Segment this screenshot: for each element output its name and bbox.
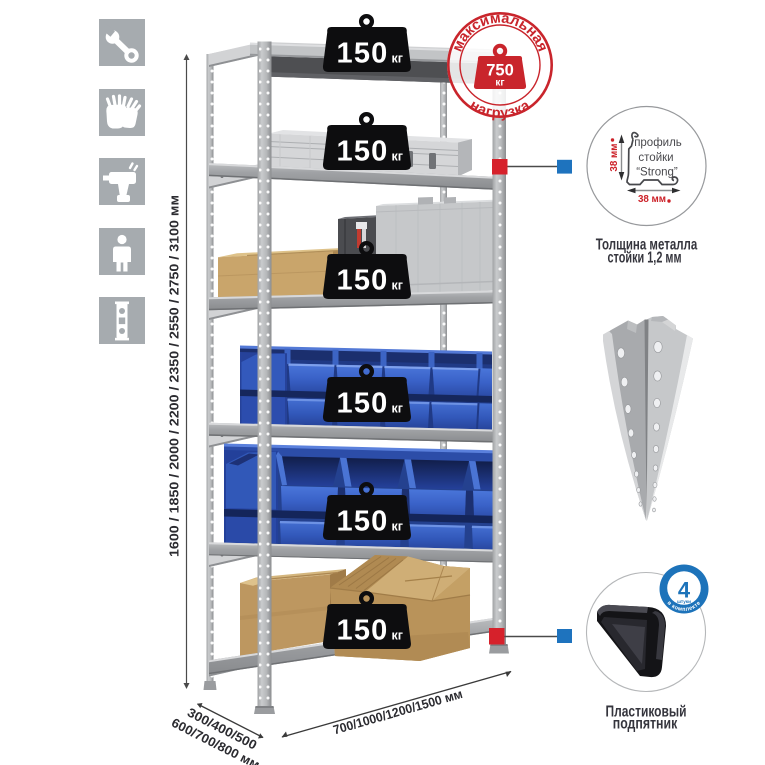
svg-text:1600 / 1850 / 2000 / 2200 / 23: 1600 / 1850 / 2000 / 2200 / 2350 / 2550 … bbox=[167, 195, 182, 557]
svg-text:подпятник: подпятник bbox=[613, 716, 678, 733]
svg-text:“Strong”: “Strong” bbox=[636, 167, 678, 179]
svg-text:кг: кг bbox=[495, 78, 504, 89]
svg-text:профиль: профиль bbox=[634, 137, 682, 149]
svg-text:38 мм: 38 мм bbox=[609, 143, 620, 171]
svg-text:штуки: штуки bbox=[677, 599, 691, 604]
svg-text:стойки: стойки bbox=[638, 152, 673, 164]
svg-text:стойки 1,2 мм: стойки 1,2 мм bbox=[608, 250, 682, 267]
svg-text:38 мм: 38 мм bbox=[638, 194, 666, 205]
